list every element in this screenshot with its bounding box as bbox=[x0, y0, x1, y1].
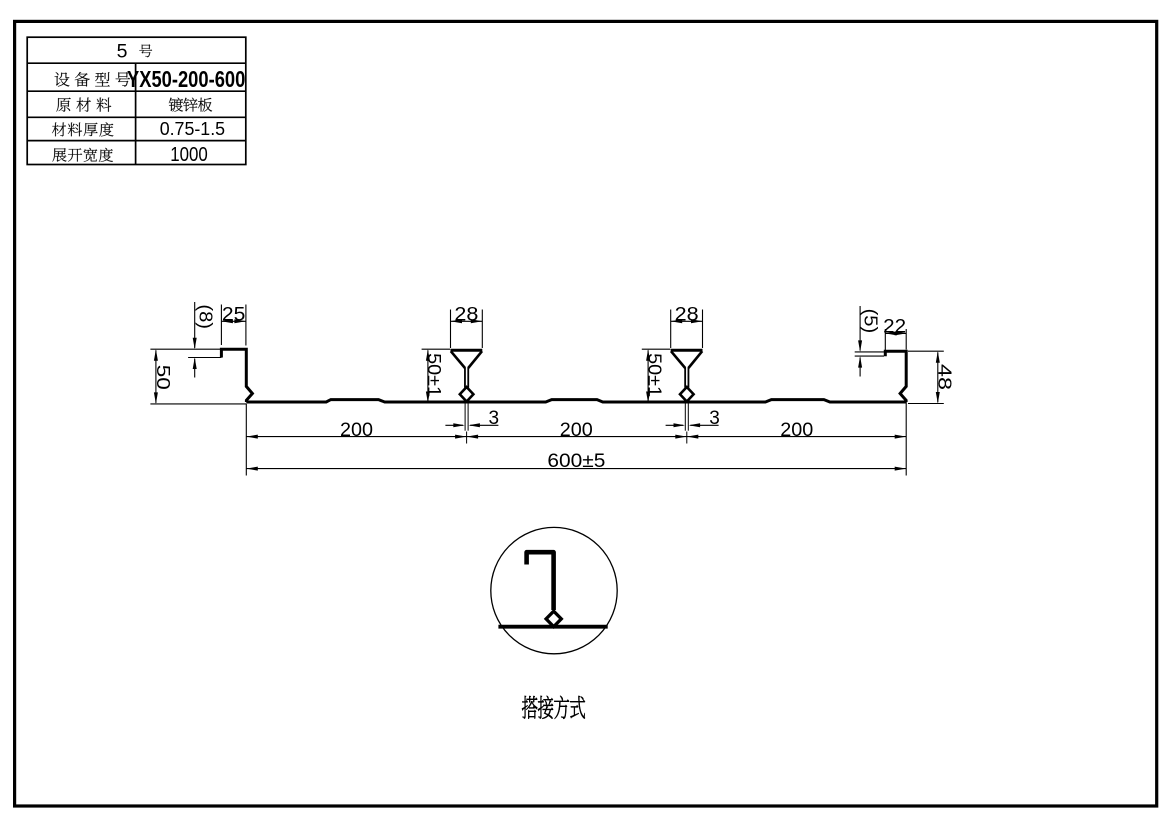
svg-text:22: 22 bbox=[883, 316, 906, 338]
svg-text:25: 25 bbox=[222, 303, 246, 325]
svg-text:1000: 1000 bbox=[170, 144, 208, 166]
svg-text:50: 50 bbox=[153, 365, 173, 390]
svg-text:200: 200 bbox=[780, 419, 813, 441]
svg-text:28: 28 bbox=[454, 303, 478, 325]
svg-text:200: 200 bbox=[560, 419, 593, 441]
svg-text:YX50-200-600: YX50-200-600 bbox=[127, 66, 245, 92]
svg-text:48: 48 bbox=[934, 364, 954, 390]
svg-text:(8): (8) bbox=[196, 304, 216, 329]
svg-text:0.75-1.5: 0.75-1.5 bbox=[160, 118, 225, 139]
svg-text:50±1: 50±1 bbox=[644, 353, 664, 397]
svg-text:28: 28 bbox=[675, 303, 699, 325]
svg-text:200: 200 bbox=[340, 419, 373, 441]
svg-text:600±5: 600±5 bbox=[547, 450, 605, 472]
svg-text:5: 5 bbox=[117, 41, 128, 63]
svg-text:3: 3 bbox=[489, 408, 500, 429]
svg-text:50±1: 50±1 bbox=[424, 353, 444, 397]
svg-text:(5): (5) bbox=[861, 309, 881, 334]
svg-text:3: 3 bbox=[709, 408, 720, 429]
